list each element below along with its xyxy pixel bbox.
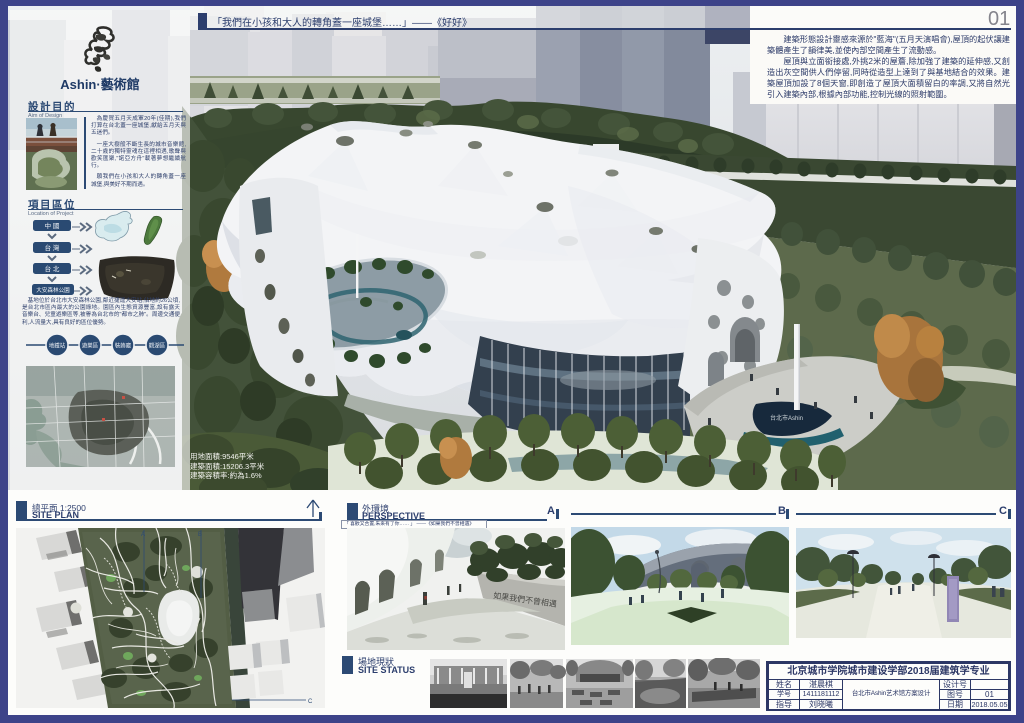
svg-text:裝飾廳: 裝飾廳 <box>115 342 132 350</box>
svg-text:觀湖區: 觀湖區 <box>149 342 166 350</box>
svg-text:C: C <box>308 699 313 705</box>
svg-text:地鐵站: 地鐵站 <box>49 342 66 350</box>
svg-text:中 國: 中 國 <box>45 221 60 230</box>
svg-text:大安森林公園: 大安森林公園 <box>36 286 70 294</box>
svg-text:台 灣: 台 灣 <box>45 243 60 252</box>
svg-text:A: A <box>141 532 145 538</box>
svg-text:遊樂區: 遊樂區 <box>82 342 99 350</box>
svg-text:台 北: 台 北 <box>45 264 60 273</box>
svg-text:台北市Ashin: 台北市Ashin <box>770 414 803 422</box>
svg-text:B: B <box>198 532 202 538</box>
